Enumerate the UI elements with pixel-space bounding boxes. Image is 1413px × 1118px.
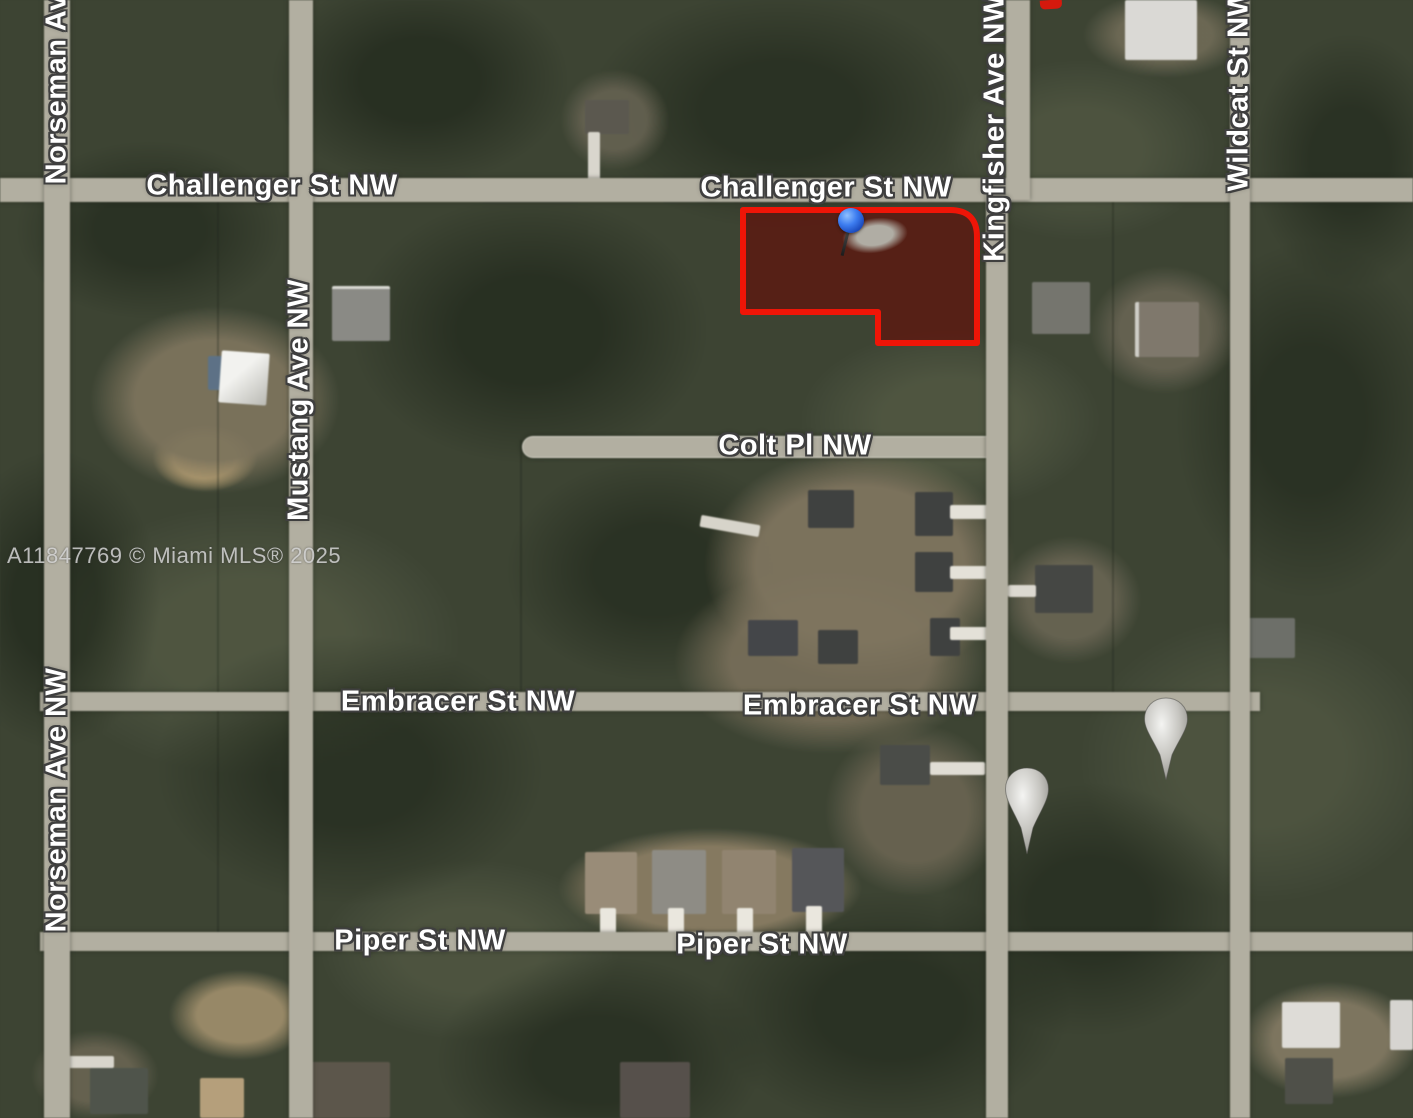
location-pushpin-icon[interactable]	[836, 208, 866, 256]
building	[652, 850, 706, 914]
road-embracer-st	[40, 692, 1260, 711]
street-label-kingfisher: Kingfisher Ave NW	[979, 0, 1012, 262]
building	[792, 848, 844, 912]
driveway	[1008, 585, 1036, 597]
driveway	[588, 132, 600, 182]
lot-boundary-line	[1112, 200, 1114, 700]
building	[722, 850, 776, 914]
street-label-embracer: Embracer St NW	[743, 690, 977, 723]
building	[585, 852, 637, 914]
street-label-challenger: Challenger St NW	[146, 170, 397, 203]
building	[1285, 1058, 1333, 1104]
building	[1032, 282, 1090, 334]
building	[200, 1078, 244, 1118]
building	[300, 1062, 390, 1118]
street-label-norseman: Norseman Ave NW	[41, 0, 74, 184]
building	[808, 490, 854, 528]
building	[1135, 302, 1199, 357]
building	[620, 1062, 690, 1118]
street-label-piper: Piper St NW	[334, 925, 505, 958]
building	[585, 100, 629, 134]
map-canvas[interactable]: Challenger St NW Challenger St NW Colt P…	[0, 0, 1413, 1118]
mls-watermark: A11847769 © Miami MLS® 2025	[7, 543, 341, 569]
building	[218, 350, 270, 405]
street-label-challenger: Challenger St NW	[700, 172, 951, 205]
pushpin-head	[838, 208, 864, 233]
driveway	[930, 762, 985, 775]
building	[915, 492, 953, 536]
building	[1282, 1002, 1340, 1048]
street-label-mustang: Mustang Ave NW	[283, 279, 316, 521]
building	[1245, 618, 1295, 658]
building	[818, 630, 858, 664]
street-label-embracer: Embracer St NW	[341, 686, 575, 719]
street-label-wildcat: Wildcat St NW	[1223, 0, 1256, 191]
street-label-piper: Piper St NW	[676, 929, 847, 962]
driveway	[66, 1056, 114, 1068]
building	[915, 552, 953, 592]
balloon-marker-icon[interactable]	[1004, 766, 1051, 858]
street-label-colt: Colt Pl NW	[718, 430, 871, 463]
building	[332, 286, 390, 341]
building	[1125, 0, 1197, 60]
street-label-norseman: Norseman Ave NW	[41, 668, 74, 933]
lot-boundary-line	[520, 440, 522, 695]
building	[90, 1068, 148, 1114]
building	[1390, 1000, 1413, 1050]
building	[1035, 565, 1093, 613]
building	[880, 745, 930, 785]
balloon-marker-icon[interactable]	[1143, 696, 1190, 784]
building	[748, 620, 798, 656]
